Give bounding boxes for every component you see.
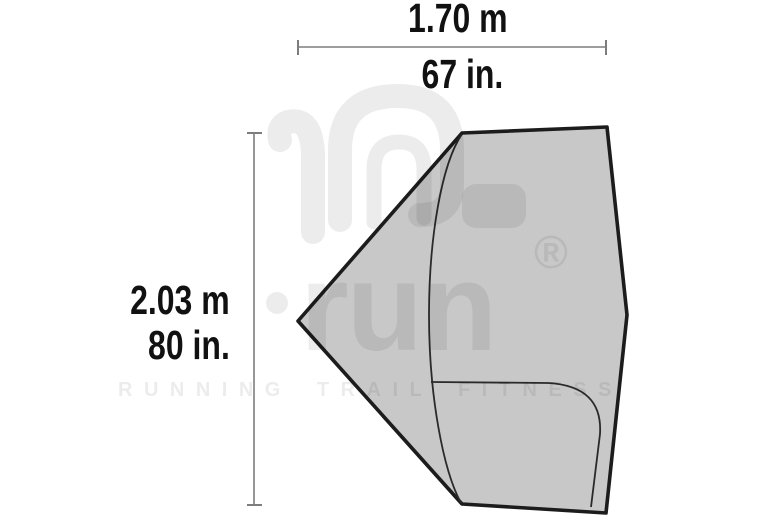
width-label-imperial: 67 in. bbox=[312, 52, 612, 96]
watermark-brand-glyphs bbox=[279, 96, 452, 232]
height-metric-value: 2.03 m bbox=[130, 278, 230, 322]
height-imperial-value: 80 in. bbox=[148, 323, 230, 367]
watermark-dash bbox=[462, 184, 526, 228]
watermark-dot bbox=[266, 292, 288, 314]
height-label-metric: 2.03 m bbox=[30, 278, 230, 322]
height-dimension-line bbox=[247, 133, 262, 505]
width-imperial-value: 67 in. bbox=[421, 52, 503, 96]
width-metric-value: 1.70 m bbox=[408, 0, 508, 40]
watermark-i-glyph bbox=[279, 121, 313, 232]
watermark-swoosh-outer bbox=[340, 96, 452, 220]
diagram-canvas: run ® RUNNING TRAIL FITNESS 1.70 m 67 in… bbox=[0, 0, 765, 518]
width-label-metric: 1.70 m bbox=[308, 0, 608, 40]
watermark-run-text: run bbox=[300, 238, 495, 377]
watermark-tagline: RUNNING TRAIL FITNESS bbox=[118, 379, 623, 401]
watermark-registered-mark: ® bbox=[534, 226, 568, 278]
height-label-imperial: 80 in. bbox=[30, 323, 230, 367]
